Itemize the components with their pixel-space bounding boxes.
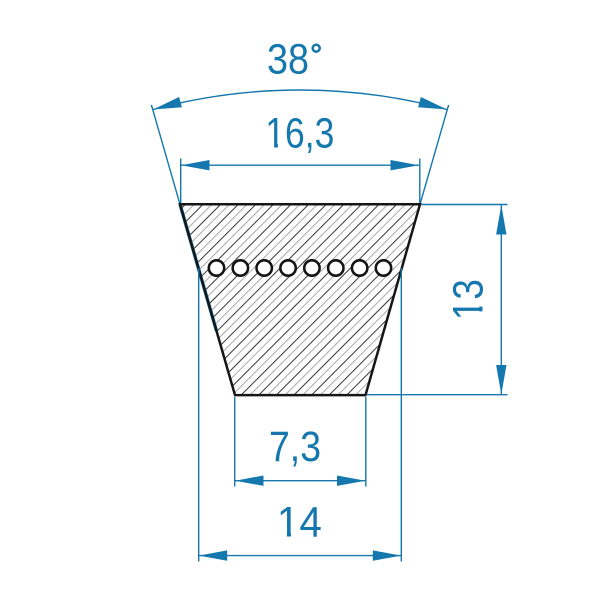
svg-text:7,3: 7,3 <box>269 423 321 471</box>
svg-text:16,3: 16,3 <box>265 110 334 158</box>
svg-text:38: 38 <box>267 36 309 84</box>
svg-text:13: 13 <box>445 279 493 320</box>
svg-text:14: 14 <box>277 499 322 547</box>
